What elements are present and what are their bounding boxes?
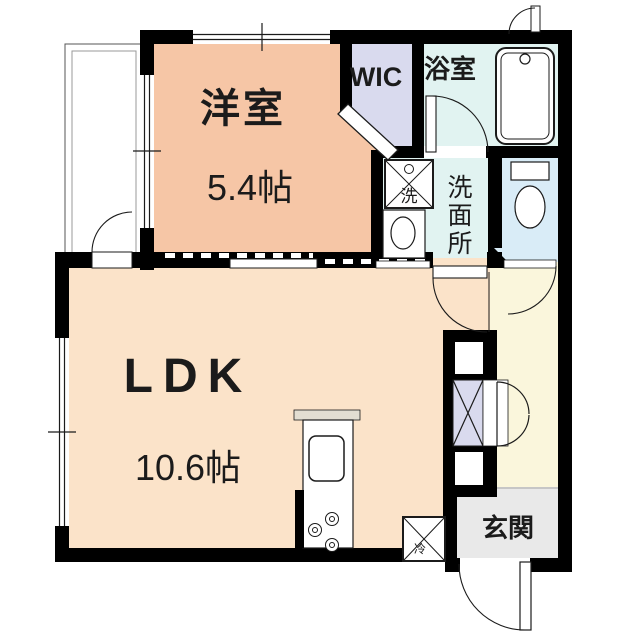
label-yoshitsu-size: 5.4帖 <box>207 167 293 208</box>
counter-cap <box>294 410 360 420</box>
toilet-bowl <box>515 186 545 228</box>
room-ldk <box>62 258 492 555</box>
wall-bottom-main <box>55 548 457 562</box>
closet-top-compartment <box>455 342 483 374</box>
wall-washroom-left <box>371 150 383 260</box>
wall-right <box>558 30 572 572</box>
svg-text:所: 所 <box>447 230 472 258</box>
entrance-front-door <box>459 558 531 630</box>
refrigerator-space: 冷 <box>403 517 445 561</box>
label-yoshitsu: 洋室 <box>200 87 286 131</box>
toilet-tank <box>511 162 549 180</box>
exterior-top-door <box>509 6 540 34</box>
label-wic: WIC <box>350 62 402 92</box>
svg-text:洗: 洗 <box>447 174 472 202</box>
washing-machine-pan: 洗 <box>385 160 433 208</box>
wall-wic-bath <box>412 44 424 148</box>
bathtub-faucet <box>520 54 530 64</box>
floorplan-svg: 洗 冷 洋室 5.4帖 LDK 10.6帖 WIC <box>0 0 640 640</box>
washer-faucet <box>405 165 414 174</box>
balcony-area <box>65 44 143 262</box>
closet-bottom-compartment <box>455 452 483 485</box>
label-ldk-size: 10.6帖 <box>135 447 241 488</box>
hallway-area <box>490 262 558 490</box>
washer-label: 洗 <box>401 187 418 206</box>
fridge-label: 冷 <box>414 542 426 556</box>
floorplan-canvas: 洗 冷 洋室 5.4帖 LDK 10.6帖 WIC <box>0 0 640 640</box>
label-washroom: 洗 面 所 <box>447 174 472 258</box>
label-genkan: 玄関 <box>482 513 534 543</box>
bathtub <box>496 48 554 144</box>
kitchen-counter <box>294 410 360 552</box>
label-ldk: LDK <box>124 350 253 403</box>
closet-door-opening <box>483 380 508 446</box>
svg-text:面: 面 <box>447 202 472 230</box>
label-bathroom: 浴室 <box>424 54 476 84</box>
wall-bottom-genkan-right <box>530 558 572 572</box>
kitchen-sink <box>309 436 344 481</box>
washbasin <box>383 210 425 258</box>
wall-washroom-toilet <box>488 152 502 248</box>
kitchen-half-wall <box>295 490 304 548</box>
